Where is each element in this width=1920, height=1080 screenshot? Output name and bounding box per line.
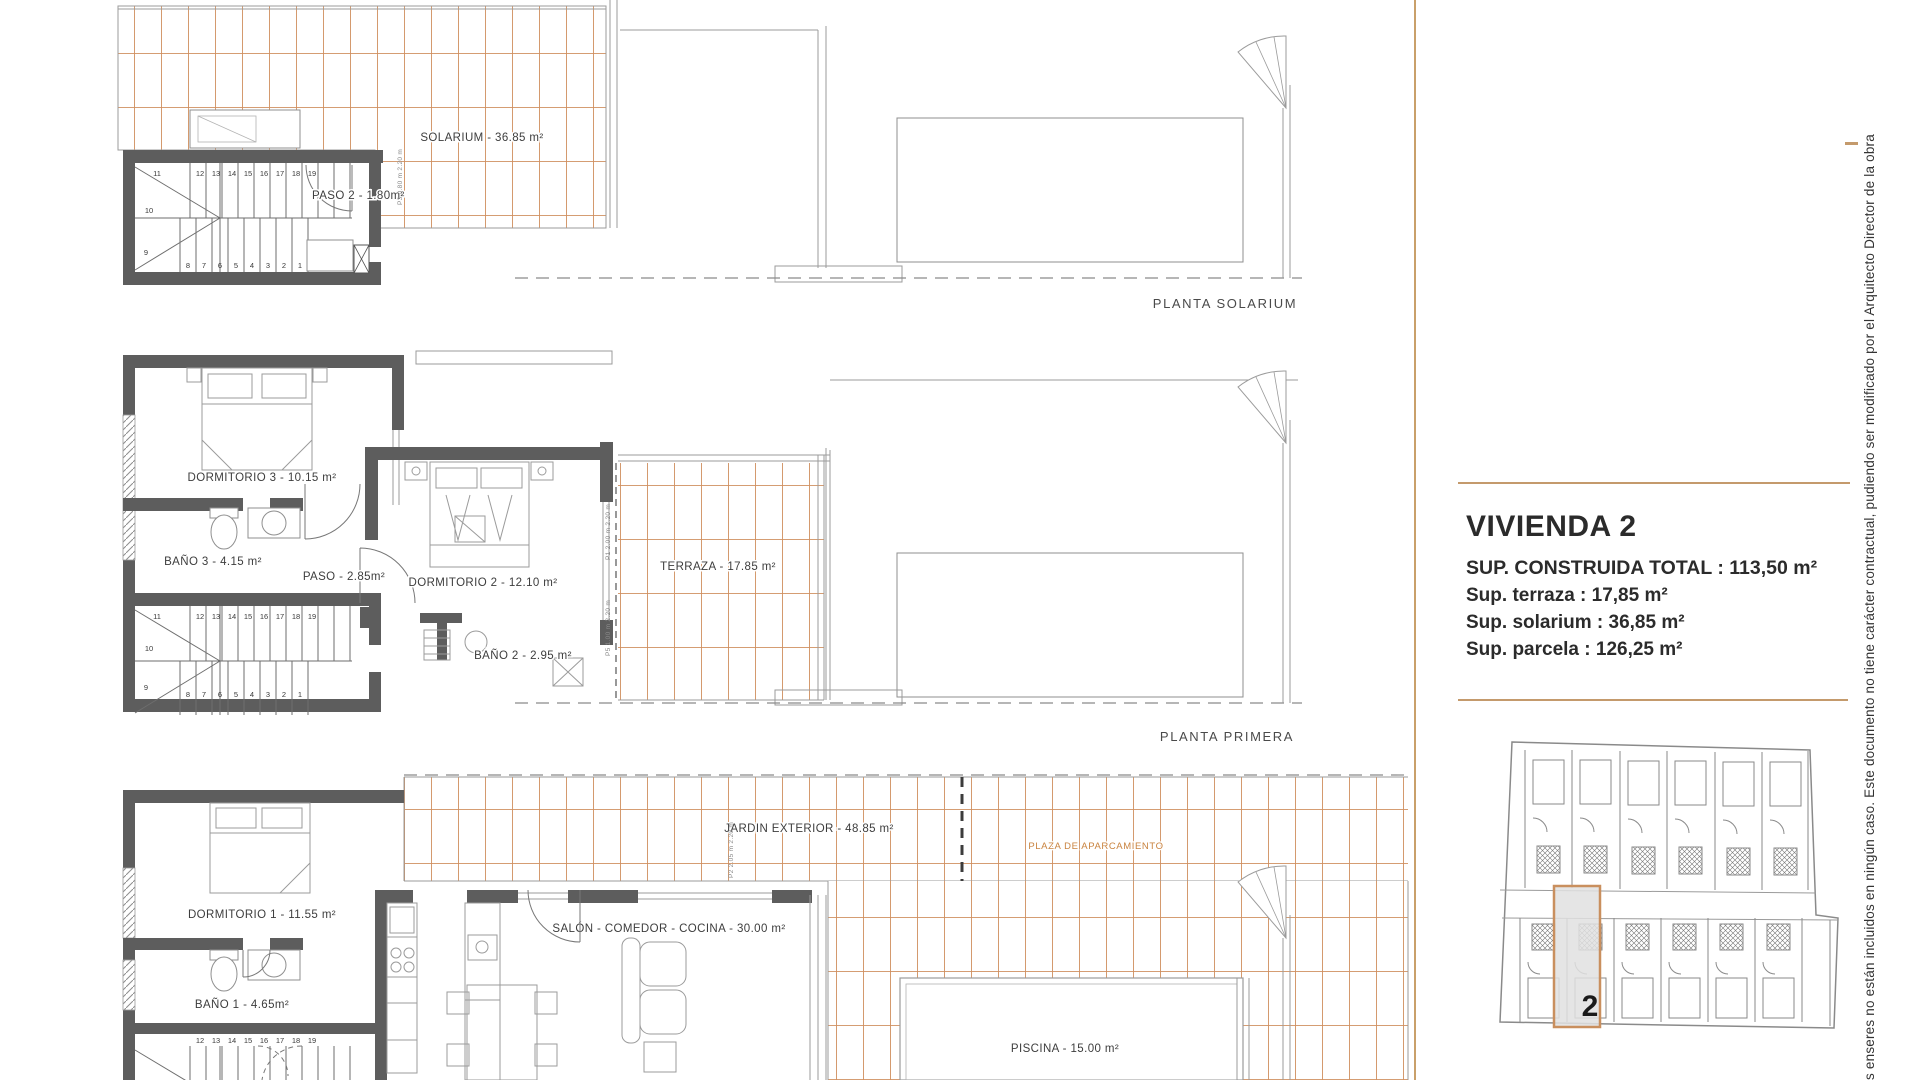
room-label-bano3: BAÑO 3 - 4.15 m² [164,555,262,568]
svg-text:3: 3 [266,690,270,699]
room-label-dormitorio1: DORMITORIO 1 - 11.55 m² [188,909,336,921]
bed-dormitorio3 [187,368,327,470]
door-tag-p5: P5 1.00 m 2.20 m [605,600,612,656]
room-label-solarium: SOLARIUM - 36.85 m² [420,132,543,144]
sheet-border-line [1414,0,1416,1080]
svg-text:6: 6 [218,261,222,270]
caption-planta-solarium: PLANTA SOLARIUM [1153,296,1297,311]
plan-solarium: 11 12 13 14 15 16 17 18 19 10 9 8 7 6 5 … [118,0,1302,311]
room-label-jardin: JARDIN EXTERIOR - 48.85 m² [724,823,894,835]
spec-parcela: Sup. parcela : 126,25 m² [1466,639,1683,661]
svg-text:15: 15 [244,1036,252,1045]
edge-tick [1845,142,1858,145]
svg-text:8: 8 [186,690,190,699]
svg-text:5: 5 [234,261,238,270]
legal-disclaimer-vertical: s enseres no están incluidos en ningún c… [1862,0,1877,1080]
svg-text:13: 13 [212,612,220,621]
entry-door-dashed [258,1046,302,1080]
room-label-bano1: BAÑO 1 - 4.65m² [195,998,289,1011]
bath1-fixtures [210,950,300,991]
svg-text:16: 16 [260,1036,268,1045]
svg-text:3: 3 [266,261,270,270]
svg-text:10: 10 [145,644,153,653]
neighbour-pool-primera [897,553,1243,697]
room-label-paso2: PASO 2 - 1.80m² [312,190,405,202]
siteplan-units-top [1525,750,1808,890]
room-label-bano2: BAÑO 2 - 2.95 m² [474,649,572,662]
svg-text:16: 16 [260,612,268,621]
room-label-dormitorio2: DORMITORIO 2 - 12.10 m² [409,577,558,589]
parcel-outline-solarium [515,26,1302,282]
svg-text:14: 14 [228,612,236,621]
stair-numbers-baja: 12 13 14 15 16 17 18 19 [196,1036,316,1045]
room-label-paso: PASO - 2.85m² [303,571,385,583]
terraza [616,450,830,700]
site-key-plan: 2 [1488,738,1844,1038]
spec-solarium: Sup. solarium : 36,85 m² [1466,612,1685,634]
svg-text:8: 8 [186,261,190,270]
room-label-salon: SALÓN - COMEDOR - COCINA - 30.00 m² [552,922,785,935]
svg-text:6: 6 [218,690,222,699]
svg-text:13: 13 [212,169,220,178]
plan-primera: DORMITORIO 3 - 10.15 m² BAÑO 3 - 4.15 m²… [123,351,1302,744]
room-label-dormitorio3: DORMITORIO 3 - 10.15 m² [188,472,337,484]
svg-text:19: 19 [308,612,316,621]
svg-text:17: 17 [276,169,284,178]
svg-text:10: 10 [145,206,153,215]
svg-text:11: 11 [153,169,161,178]
svg-text:12: 12 [196,612,204,621]
neighbour-pool [897,118,1243,262]
bath3-fixtures [210,508,300,549]
room-label-plaza: PLAZA DE APARCAMIENTO [1028,841,1163,852]
svg-text:7: 7 [202,690,206,699]
door-tag-p2: P2 2.05 m 2.20 m [728,822,735,878]
jardin-strip [404,775,1408,881]
svg-text:14: 14 [228,1036,236,1045]
svg-text:12: 12 [196,1036,204,1045]
door-tag-p3: P3 0.80 m 2.20 m [397,149,404,205]
svg-text:16: 16 [260,169,268,178]
svg-text:5: 5 [234,690,238,699]
svg-text:19: 19 [308,1036,316,1045]
stair-numbers-solarium: 11 12 13 14 15 16 17 18 19 10 9 8 7 6 5 … [144,169,316,270]
room-label-terraza: TERRAZA - 17.85 m² [660,561,776,573]
svg-text:15: 15 [244,169,252,178]
svg-text:2: 2 [282,261,286,270]
staircase-baja [135,1046,352,1080]
spec-construida-total: SUP. CONSTRUIDA TOTAL : 113,50 m² [1466,557,1817,580]
svg-text:4: 4 [250,261,254,270]
caption-planta-primera: PLANTA PRIMERA [1160,729,1294,744]
door-tag-p1: P1 2.00 m 2.20 m [605,504,612,560]
svg-text:1: 1 [298,261,302,270]
unit-title: VIVIENDA 2 [1466,510,1637,544]
stove-burners [391,948,414,972]
dining-table [447,985,557,1080]
svg-text:9: 9 [144,683,148,692]
floorplans-drawing: 11 12 13 14 15 16 17 18 19 10 9 8 7 6 5 … [0,0,1415,1080]
separator-top [1458,482,1850,484]
room-label-piscina: PISCINA - 15.00 m² [1011,1043,1119,1055]
window-hatch [123,415,135,560]
kitchen [387,903,500,1080]
bed-dormitorio2 [405,462,553,567]
svg-text:9: 9 [144,248,148,257]
plan-baja: JARDIN EXTERIOR - 48.85 m² PLAZA DE APAR… [123,775,1408,1080]
svg-text:2: 2 [282,690,286,699]
unit-number-label: 2 [1582,990,1599,1023]
svg-text:15: 15 [244,612,252,621]
svg-text:7: 7 [202,261,206,270]
bed-dormitorio1 [210,803,310,893]
svg-text:12: 12 [196,169,204,178]
svg-text:18: 18 [292,1036,300,1045]
svg-text:19: 19 [308,169,316,178]
spec-terraza: Sup. terraza : 17,85 m² [1466,585,1668,607]
sofa [622,938,686,1072]
gate-fan [1238,36,1286,108]
svg-text:17: 17 [276,612,284,621]
svg-text:1: 1 [298,690,302,699]
staircase-primera [135,606,352,715]
svg-text:18: 18 [292,612,300,621]
svg-text:13: 13 [212,1036,220,1045]
svg-text:11: 11 [153,612,161,621]
separator-bottom [1458,699,1848,701]
piscina-pool [900,978,1243,1080]
svg-text:14: 14 [228,169,236,178]
stair-numbers-primera: 11 12 13 14 15 16 17 18 19 10 9 8 7 6 5 … [144,612,316,699]
floorplan-sheet: 11 12 13 14 15 16 17 18 19 10 9 8 7 6 5 … [0,0,1920,1080]
svg-text:17: 17 [276,1036,284,1045]
svg-text:4: 4 [250,690,254,699]
roof-hatch-box [190,110,300,148]
paso2-door [306,165,369,273]
svg-text:18: 18 [292,169,300,178]
